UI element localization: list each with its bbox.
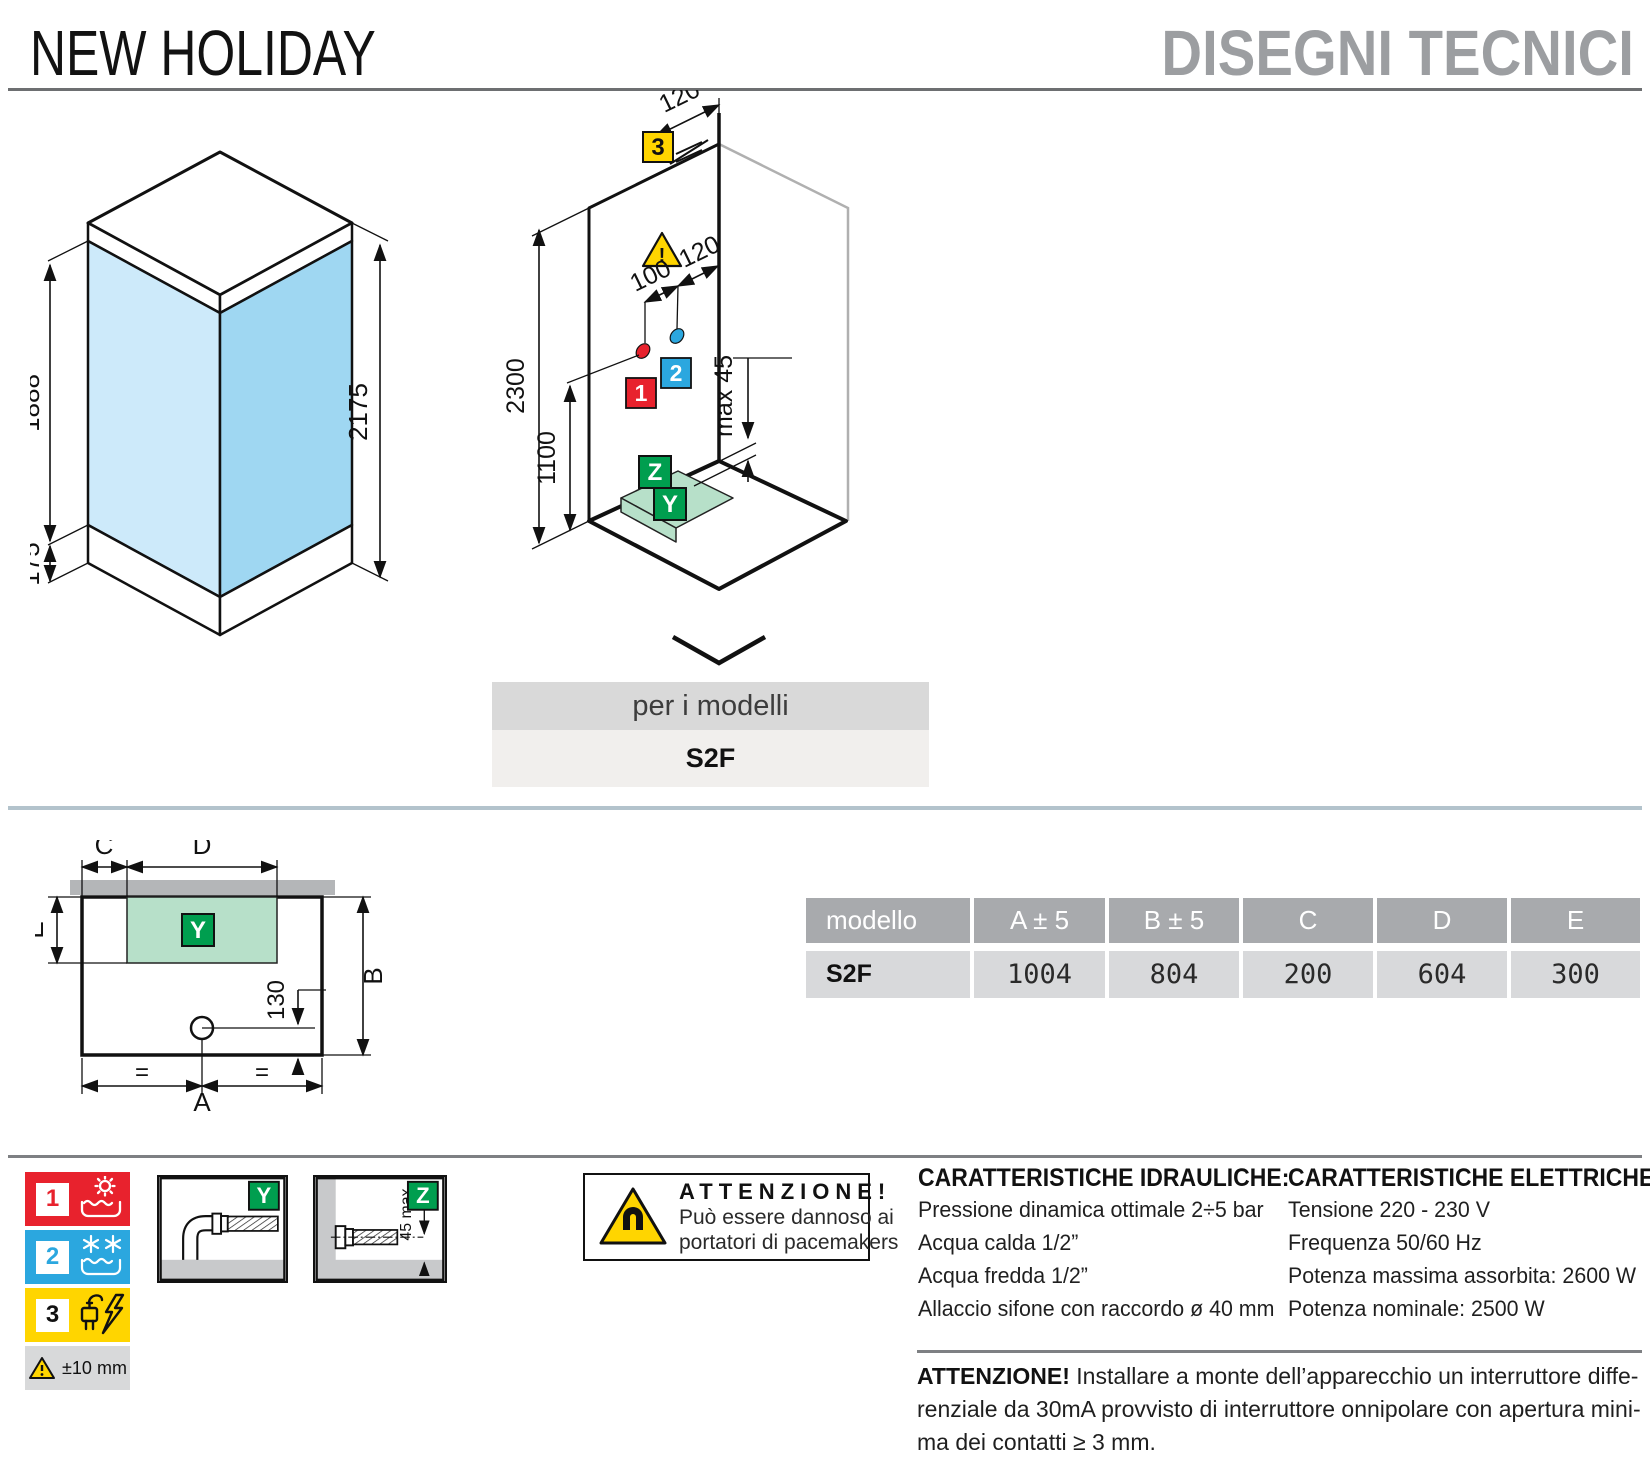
dim-e: E [35,921,49,938]
sun-water-icon [75,1176,127,1222]
footer-warning-line1: Installare a monte dell’apparecchio un i… [1076,1363,1638,1389]
svg-text:3: 3 [651,134,664,161]
footer-warning: ATTENZIONE! Installare a monte dell’appa… [917,1360,1645,1459]
electric-line: Tensione 220 - 230 V [1288,1193,1630,1226]
dimensions-table: modello A ± 5 B ± 5 C D E S2F 1004 804 2… [806,898,1640,998]
svg-text:Y: Y [190,917,206,944]
col-header-e: E [1511,898,1640,943]
svg-text:Y: Y [662,491,678,518]
hydraulic-line: Pressione dinamica ottimale 2÷5 bar [918,1193,1260,1226]
legend-cold-number: 2 [36,1241,69,1274]
dim-d: D [193,840,212,860]
table-row: S2F 1004 804 200 604 300 [806,951,1640,998]
models-band-label: per i modelli [492,682,929,730]
cell-b: 804 [1109,951,1239,998]
svg-text:Z: Z [416,1183,430,1208]
footer-divider [8,1155,1642,1158]
drain-detail-z: 45 max Z [313,1175,447,1283]
electric-specs: CARATTERISTICHE ELETTRICHE: Tensione 220… [1288,1164,1648,1325]
col-header-modello: modello [806,898,970,943]
hydraulic-line: Acqua fredda 1/2” [918,1259,1260,1292]
dim-glass-height: 1888 [30,374,45,432]
col-header-b: B ± 5 [1109,898,1239,943]
equal-mark-right: = [255,1059,269,1086]
electric-line: Potenza massima assorbita: 2600 W [1288,1259,1630,1292]
models-band-model: S2F [492,730,929,787]
svg-text:2: 2 [670,360,683,386]
footer-warning-line3: ma dei contatti ≥ 3 mm. [917,1429,1156,1455]
legend-power-number: 3 [36,1299,69,1332]
cell-d: 604 [1377,951,1507,998]
magnet-warning-icon [597,1185,669,1249]
electric-line: Potenza nominale: 2500 W [1288,1292,1630,1325]
dim-b: B [358,967,388,984]
magnet-warning-box: ATTENZIONE! Può essere dannoso ai portat… [583,1173,870,1261]
legend-cold-water: 2 [25,1230,130,1284]
dim-base-height: 175 [30,542,45,585]
models-pointer-chevron [673,637,765,663]
page-subtitle: DISEGNI TECNICI [1161,16,1634,90]
plan-view-drawing: Y C D E B 130 = = A [35,840,395,1115]
section-divider [8,806,1642,810]
magnet-warning-line2: portatori di pacemakers [679,1230,898,1255]
legend-tolerance: ±10 mm [25,1346,130,1390]
dim-drain-offset: 130 [263,980,290,1020]
datasheet-page: { "header": {"title": "NEW HOLIDAY", "su… [0,0,1650,1442]
cell-model: S2F [806,951,970,998]
snowflakes-water-icon [75,1234,127,1280]
footer-warning-line2: renziale da 30mA provvisto di interrutto… [917,1396,1641,1422]
legend-hot-number: 1 [36,1183,69,1216]
dim-top-offset: 120 [655,90,705,119]
dim-wall-height: 2300 [502,358,530,414]
legend-power: 3 [25,1288,130,1342]
electric-title: CARATTERISTICHE ELETTRICHE: [1288,1164,1619,1193]
drain-detail-y: Y [157,1175,288,1283]
dim-mixer-height: 1100 [533,431,561,485]
cell-e: 300 [1511,951,1640,998]
dim-c: C [95,840,114,860]
hydraulic-line: Allaccio sifone con raccordo ø 40 mm [918,1292,1260,1325]
svg-text:Z: Z [648,459,663,486]
magnet-warning-title: ATTENZIONE! [679,1179,898,1205]
page-title: NEW HOLIDAY [30,16,376,90]
equal-mark-left: = [135,1059,149,1086]
plug-lightning-icon [74,1291,130,1339]
electric-line: Frequenza 50/60 Hz [1288,1226,1630,1259]
cell-c: 200 [1243,951,1373,998]
col-header-d: D [1377,898,1507,943]
installation-isometric-drawing: 120 3 ! 100 120 1 2 2300 1100 max 45 Z Y [480,90,920,675]
tolerance-value: ±10 mm [62,1358,127,1379]
svg-text:Y: Y [257,1183,272,1208]
dim-a: A [193,1087,211,1115]
table-header-row: modello A ± 5 B ± 5 C D E [806,898,1640,943]
footer-warning-divider [917,1350,1642,1353]
hydraulic-line: Acqua calda 1/2” [918,1226,1260,1259]
footer-warning-title: ATTENZIONE! [917,1363,1070,1389]
col-header-c: C [1243,898,1373,943]
svg-text:1: 1 [635,380,648,406]
cell-a: 1004 [974,951,1105,998]
hydraulic-specs: CARATTERISTICHE IDRAULICHE: Pressione di… [918,1164,1278,1325]
cabin-isometric-drawing: 1888 175 2175 [30,125,450,685]
dim-tray-gap: max 45 [710,355,738,437]
col-header-a: A ± 5 [974,898,1105,943]
hydraulic-title: CARATTERISTICHE IDRAULICHE: [918,1164,1249,1193]
corrugated-hose [228,1216,278,1230]
legend-hot-water: 1 [25,1172,130,1226]
warning-triangle-icon [28,1356,56,1380]
magnet-warning-line1: Può essere dannoso ai [679,1205,898,1230]
dim-total-height: 2175 [343,383,373,441]
wall-bar [70,880,335,895]
